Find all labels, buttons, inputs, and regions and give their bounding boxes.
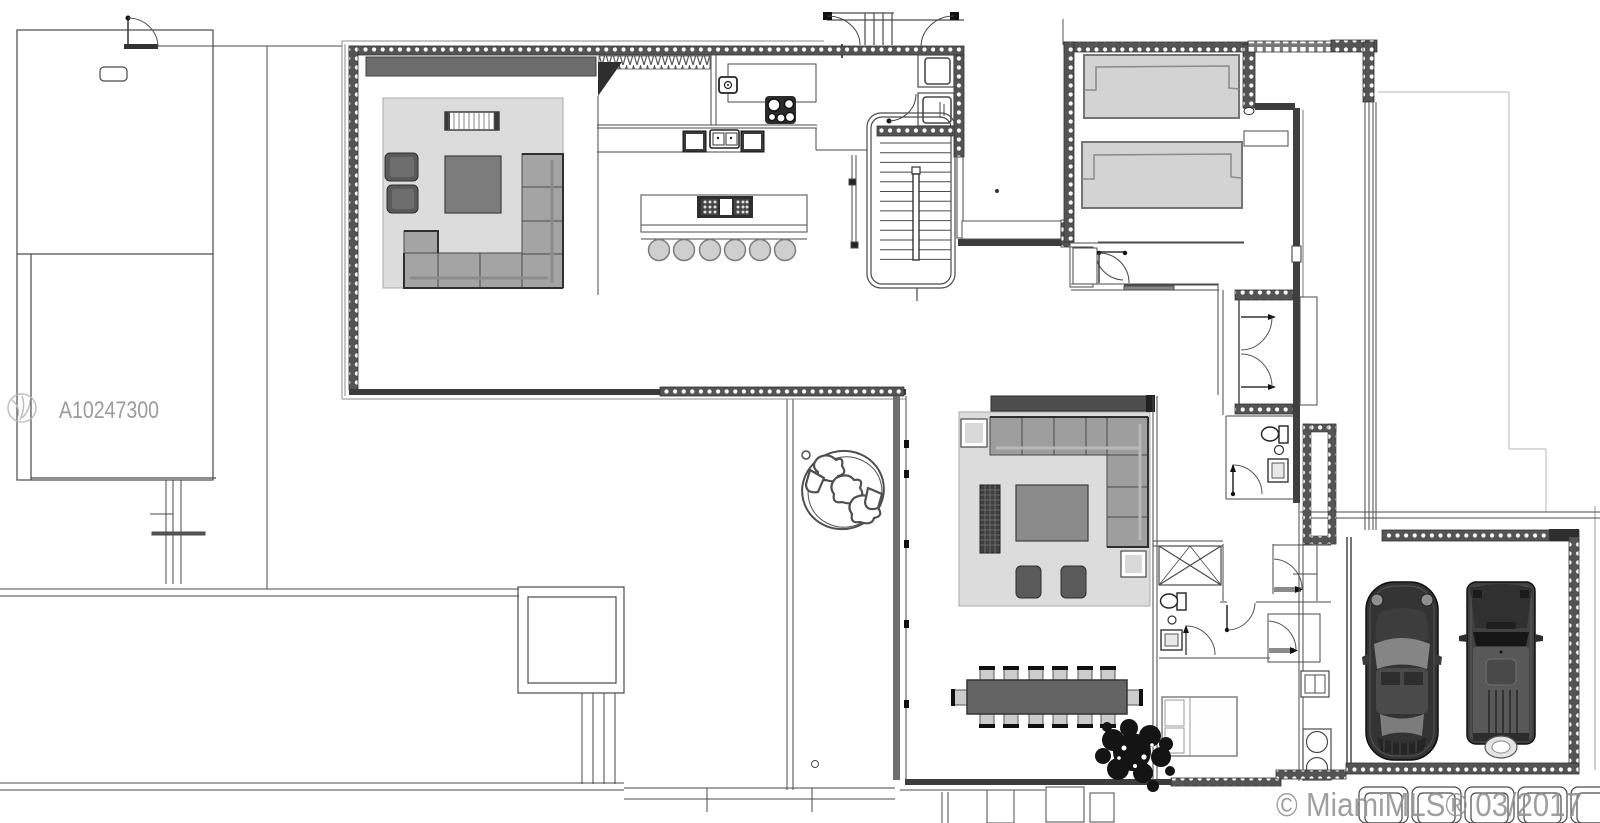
svg-text:© MiamiMLS® 03/2017: © MiamiMLS® 03/2017	[1276, 786, 1582, 823]
svg-text:A10247300: A10247300	[59, 397, 159, 424]
